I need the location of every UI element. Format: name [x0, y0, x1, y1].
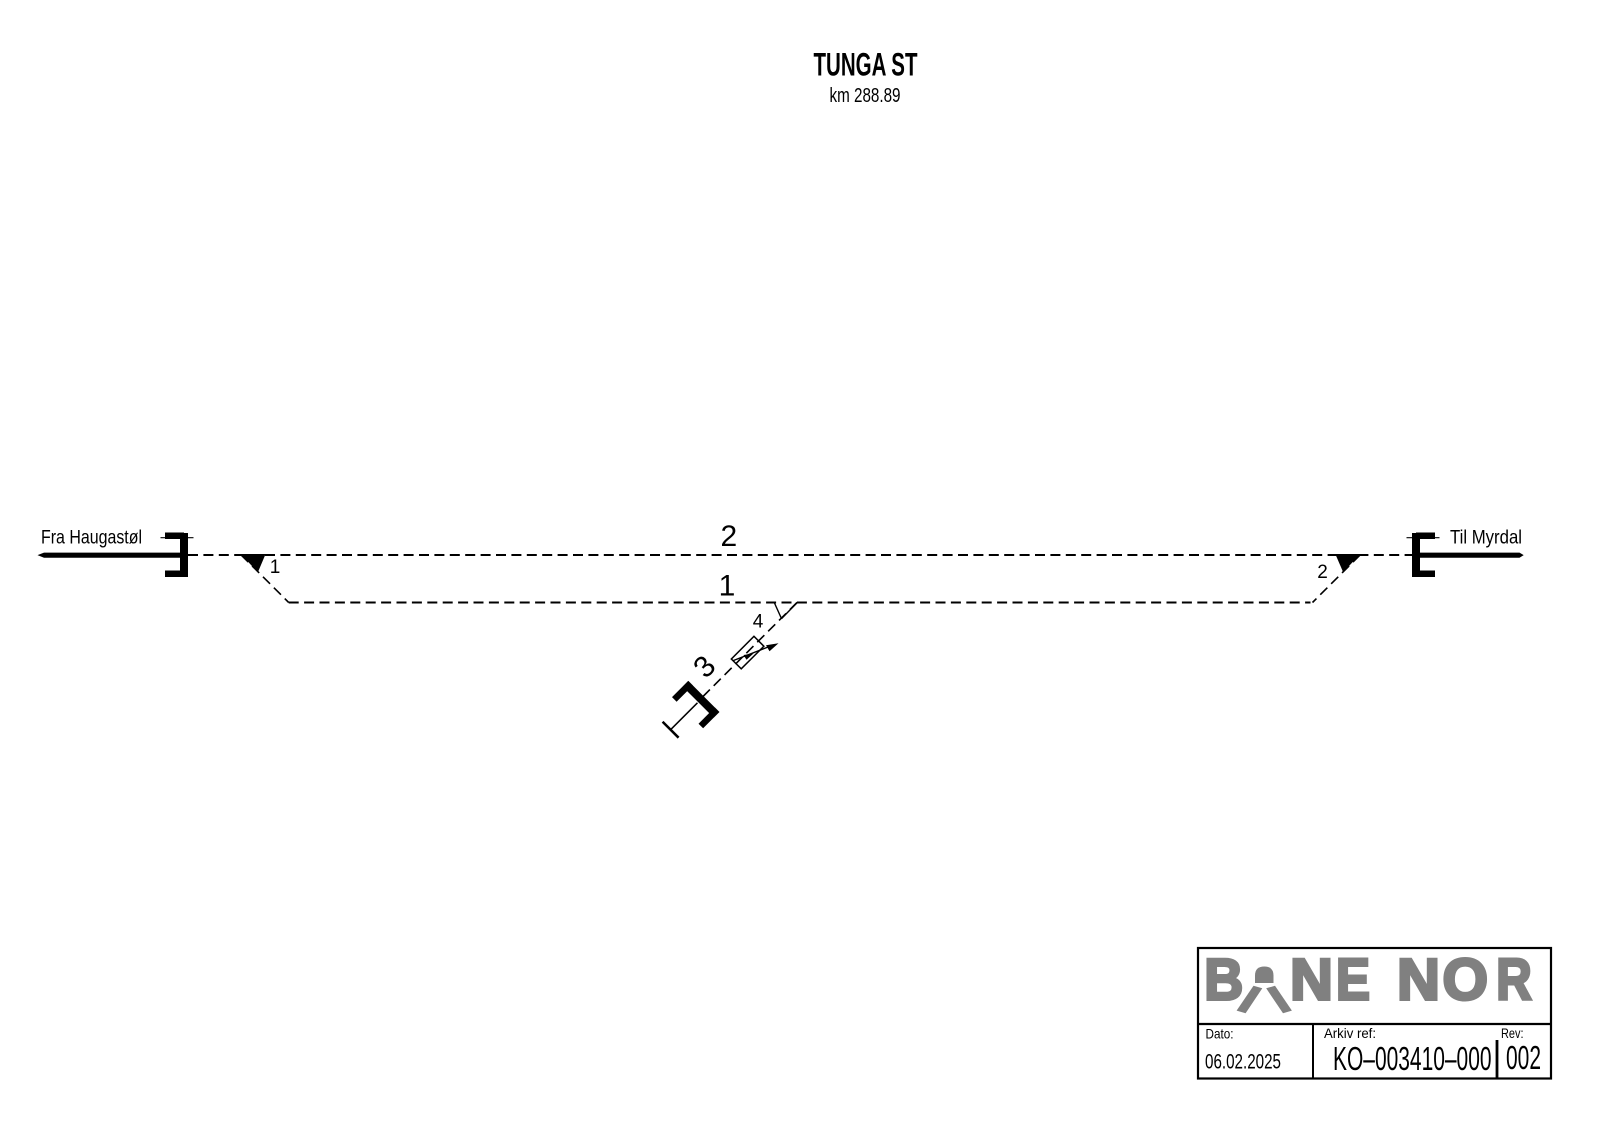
svg-text:1: 1 [270, 557, 281, 578]
svg-text:4: 4 [753, 612, 764, 633]
svg-text:2: 2 [1317, 562, 1328, 583]
svg-text:Fra Haugastøl: Fra Haugastøl [41, 528, 142, 549]
svg-text:E: E [1336, 948, 1370, 1013]
svg-text:Arkiv ref:: Arkiv ref: [1324, 1025, 1376, 1041]
svg-text:Til Myrdal: Til Myrdal [1450, 528, 1522, 549]
svg-text:Dato:: Dato: [1206, 1026, 1234, 1042]
svg-text:06.02.2025: 06.02.2025 [1205, 1050, 1281, 1073]
svg-text:O: O [1443, 948, 1489, 1013]
svg-text:002: 002 [1506, 1039, 1541, 1076]
svg-text:1: 1 [719, 570, 736, 603]
svg-text:TUNGA ST: TUNGA ST [814, 46, 918, 82]
svg-text:R: R [1496, 948, 1532, 1013]
svg-text:N: N [1290, 948, 1333, 1013]
svg-text:B: B [1204, 948, 1243, 1013]
svg-text:km 288.89: km 288.89 [830, 85, 901, 107]
svg-text:N: N [1397, 948, 1440, 1013]
svg-text:KO–003410–000: KO–003410–000 [1333, 1040, 1492, 1077]
svg-text:2: 2 [721, 520, 738, 553]
